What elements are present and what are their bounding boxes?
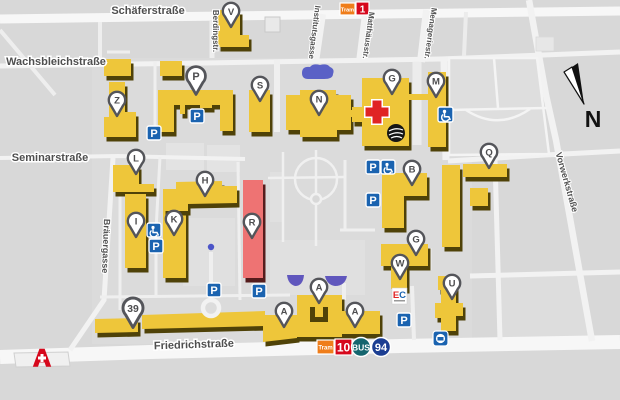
svg-text:Q: Q [485,147,492,158]
svg-text:W: W [396,258,405,269]
svg-text:94: 94 [375,342,388,354]
svg-text:L: L [133,153,139,164]
svg-text:V: V [228,7,235,18]
svg-text:P: P [400,315,407,327]
svg-text:P: P [255,286,262,298]
svg-text:Berdingstr.: Berdingstr. [211,10,220,52]
svg-text:P: P [192,71,199,83]
svg-text:H: H [202,175,209,186]
svg-text:39: 39 [127,304,139,315]
svg-text:P: P [210,285,217,297]
svg-text:S: S [257,80,263,91]
svg-text:10: 10 [337,341,351,355]
svg-text:Tram: Tram [341,8,354,14]
svg-text:U: U [449,278,456,289]
svg-text:A: A [281,306,288,317]
svg-text:Seminarstraße: Seminarstraße [12,152,88,164]
svg-text:B: B [409,164,416,175]
svg-text:A: A [352,306,359,317]
svg-text:N: N [585,106,602,132]
svg-text:Tram: Tram [318,346,332,352]
svg-text:G: G [388,73,395,84]
svg-text:C: C [399,290,406,301]
svg-text:I: I [135,216,138,227]
svg-text:M: M [432,76,440,87]
svg-text:N: N [316,94,323,105]
svg-text:1: 1 [360,5,366,16]
svg-text:P: P [150,128,157,140]
svg-text:BUS: BUS [352,343,370,353]
svg-text:P: P [152,241,159,253]
svg-text:Wachsbleichstraße: Wachsbleichstraße [6,56,106,68]
svg-text:A: A [316,282,323,293]
svg-text:Schäferstraße: Schäferstraße [111,5,184,17]
svg-text:P: P [193,111,200,123]
svg-text:Z: Z [114,95,120,106]
svg-text:Bräuergasse: Bräuergasse [100,219,112,274]
svg-text:P: P [369,162,376,174]
svg-text:G: G [412,234,419,245]
svg-text:K: K [171,214,178,225]
svg-text:P: P [369,195,376,207]
svg-text:R: R [249,217,256,228]
